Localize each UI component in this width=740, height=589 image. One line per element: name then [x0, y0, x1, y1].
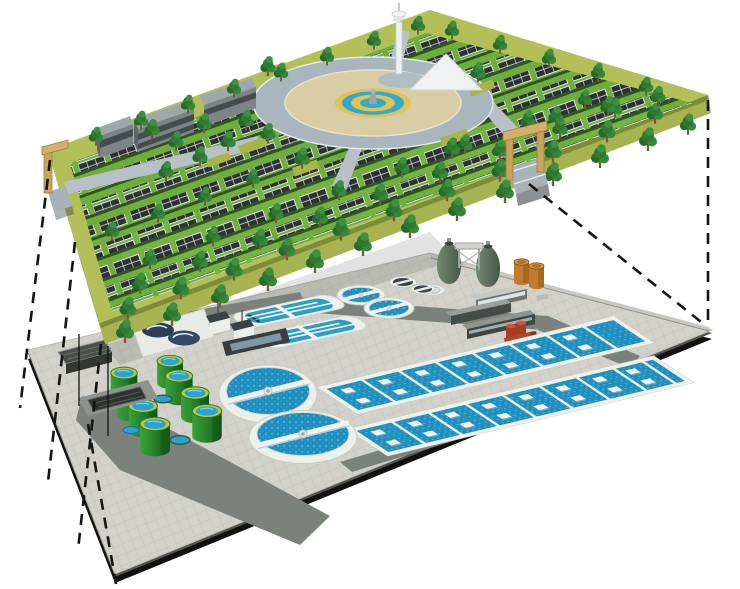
fountain — [335, 89, 411, 118]
scene-illustration — [0, 0, 740, 589]
circular-clarifier — [249, 411, 357, 464]
ground-basin — [170, 436, 190, 444]
gas-tanks — [514, 259, 544, 289]
round-settling-tank — [364, 298, 414, 319]
small-blue-pool — [123, 427, 139, 434]
thickener-tank — [411, 284, 435, 294]
digester-gantry — [455, 243, 483, 249]
illustration-stage — [0, 0, 740, 589]
thickener-tank — [390, 277, 417, 288]
grit-dome — [168, 331, 200, 346]
